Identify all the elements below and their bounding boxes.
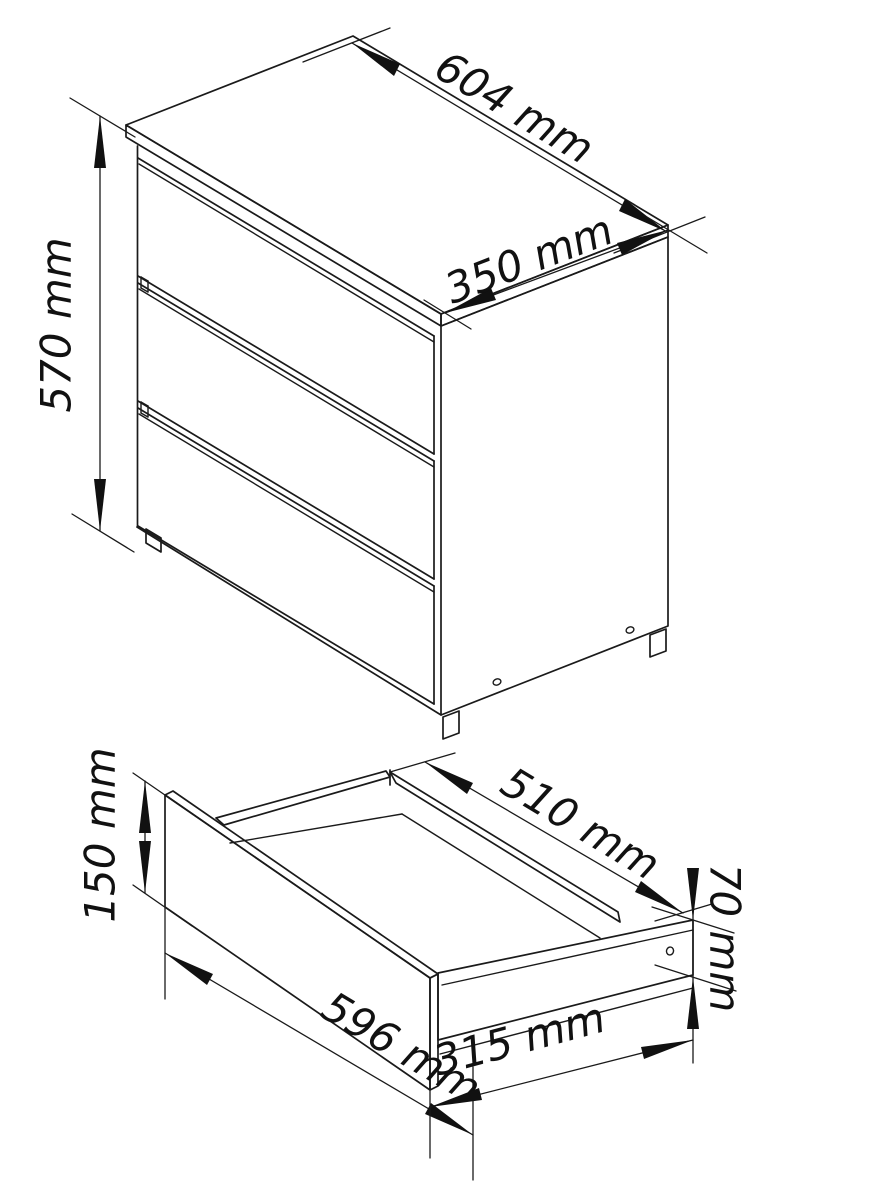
cabinet-foot-right-front xyxy=(443,711,459,739)
drawer-front-1 xyxy=(138,158,434,454)
cabinet-foot-right-back xyxy=(650,629,666,657)
cabinet-dimensions: 604 mm 350 mm 570 mm xyxy=(32,28,708,552)
drawer-dimensions: 150 mm 596 mm 510 mm xyxy=(76,747,750,1180)
right-wall-hole xyxy=(666,946,675,956)
cabinet-side-panel xyxy=(441,237,668,715)
drawer-right-wall-inner-edge xyxy=(442,930,693,985)
arrowhead xyxy=(687,868,699,920)
arrowhead xyxy=(641,1040,693,1059)
drawer-left-wall-base xyxy=(230,814,402,843)
arrowhead xyxy=(94,479,106,531)
drawing-canvas: 604 mm 350 mm 570 mm xyxy=(0,0,875,1200)
drawer-front-top-band xyxy=(165,791,438,978)
dimension-label-side-height: 70 mm xyxy=(701,864,750,1013)
drawer-front-2 xyxy=(138,283,434,579)
arrowhead xyxy=(139,781,151,833)
dimension-height: 570 mm xyxy=(32,98,136,552)
dimension-width: 604 mm xyxy=(303,28,705,253)
dimension-label-front-height: 150 mm xyxy=(76,747,125,922)
cabinet-top-face xyxy=(126,36,668,314)
arrowhead xyxy=(94,116,106,168)
dimension-label-depth: 350 mm xyxy=(438,205,619,314)
arrowhead xyxy=(139,841,151,893)
dimension-label-side-length: 315 mm xyxy=(428,993,610,1086)
dimension-label-width: 604 mm xyxy=(427,41,603,173)
dimension-side-length: 315 mm xyxy=(428,993,693,1158)
arrowhead xyxy=(687,977,699,1029)
side-panel-hole-front xyxy=(492,678,502,686)
drawer-left-wall-top xyxy=(216,771,390,825)
dimension-front-height: 150 mm xyxy=(76,747,193,926)
arrowhead xyxy=(619,199,667,232)
arrowhead xyxy=(617,230,668,255)
technical-drawing-sheet: 604 mm 350 mm 570 mm xyxy=(0,0,875,1200)
drawer-drawing: 150 mm 596 mm 510 mm xyxy=(76,747,750,1180)
dimension-side-height: 70 mm xyxy=(652,864,750,1063)
side-panel-hole-back xyxy=(625,626,635,634)
arrowhead xyxy=(425,762,473,794)
cabinet-drawing: 604 mm 350 mm 570 mm xyxy=(32,28,708,739)
arrowhead xyxy=(165,953,213,985)
dimension-label-height: 570 mm xyxy=(32,237,81,412)
dimension-label-inner-depth: 510 mm xyxy=(493,757,669,889)
cabinet-top-front-edge xyxy=(126,125,441,326)
